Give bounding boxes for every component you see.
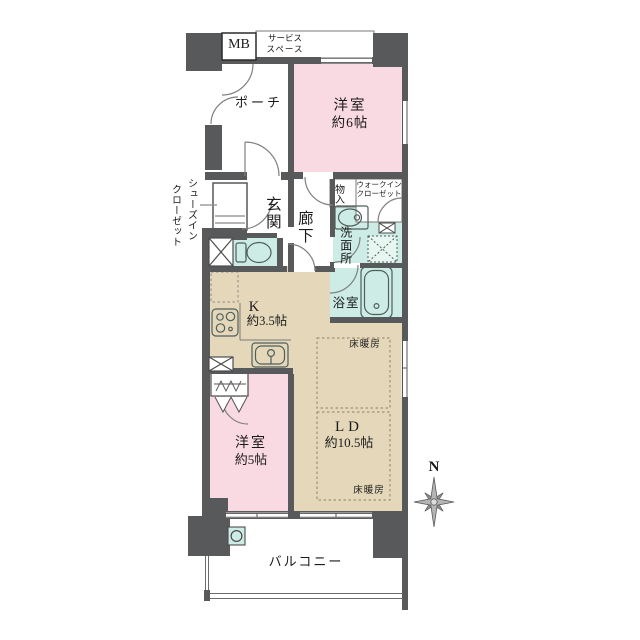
- washroom-label: 洗面所: [338, 223, 352, 267]
- window-ld-balcony: [300, 513, 372, 519]
- wall-bedroom5-ld: [288, 374, 294, 517]
- vent-window: [379, 223, 395, 233]
- compass-north-label: N: [424, 459, 444, 476]
- bedroom5-label: 洋室: [224, 436, 278, 452]
- balcony-label: バルコニー: [266, 555, 346, 570]
- meter-box-label: MB: [222, 37, 256, 53]
- window-bedroom5-balcony: [226, 513, 288, 519]
- wall-porch-bedroom6: [288, 57, 294, 179]
- pillar-bottom-right: [373, 518, 408, 558]
- shoes-closet-label-col2: クローゼット: [169, 182, 181, 248]
- living-dining-label: LD: [317, 419, 381, 436]
- floor-heating-label-top: 床暖房: [342, 340, 388, 351]
- washing-machine-space: [368, 236, 397, 262]
- wall-step-bottom-left: [206, 498, 228, 516]
- bedroom6-size-label: 約6帖: [298, 115, 402, 131]
- door-entrance-arc: [245, 142, 279, 176]
- floor-plan-drawing: [0, 0, 640, 640]
- living-dining-size-label: 約10.5帖: [313, 436, 385, 451]
- compass-rose: [414, 477, 454, 527]
- service-space-label-line1: サービス: [256, 34, 314, 44]
- bathroom-label: 浴室: [328, 296, 364, 310]
- hallway-label: 廊下: [295, 203, 313, 251]
- storage-label: 物入: [332, 181, 344, 207]
- window-bedroom6-right: [402, 101, 409, 144]
- pillar-top-left: [186, 33, 222, 71]
- floor-heating-label-bottom: 床暖房: [346, 486, 392, 497]
- door-bedroom6: [305, 177, 333, 205]
- entrance-label: 玄関: [263, 189, 281, 237]
- kitchen-size-label: 約3.5帖: [237, 314, 297, 328]
- wall-entrance-hall-upper: [288, 179, 294, 227]
- balcony-rail-post: [204, 590, 210, 601]
- bedroom5-size-label: 約5帖: [222, 453, 280, 468]
- wall-kitchen-north: [202, 266, 287, 272]
- floor-plan: MB サービス スペース ポーチ 洋室 約6帖 シューズイン クローゼット 玄関…: [0, 0, 640, 640]
- wall-entrance-hall-lower: [288, 243, 294, 272]
- wall-porch-entrance-left: [205, 172, 247, 180]
- window-bedroom6-top: [321, 57, 372, 63]
- slop-sink-icon: [228, 527, 245, 545]
- porch-label: ポーチ: [228, 96, 290, 111]
- service-space-label-line2: スペース: [256, 45, 314, 55]
- wall-porch-west: [205, 125, 222, 170]
- wall-left: [202, 240, 210, 517]
- doorgap-bedroom6: [303, 172, 333, 179]
- shoes-closet-label-col1: シューズイン: [185, 176, 197, 242]
- pillar-bottom-left: [188, 516, 230, 556]
- pipe-space-kitchen: [209, 357, 233, 371]
- door-porch-gate-upper: [222, 64, 253, 95]
- compass-center: [431, 499, 437, 505]
- pipe-space-toilet: [209, 238, 233, 266]
- window-ld-right: [402, 341, 409, 397]
- wall-balcony-right: [402, 558, 408, 610]
- bedroom6-label: 洋室: [298, 98, 402, 115]
- walk-in-closet-label-line2: クローゼット: [354, 190, 404, 199]
